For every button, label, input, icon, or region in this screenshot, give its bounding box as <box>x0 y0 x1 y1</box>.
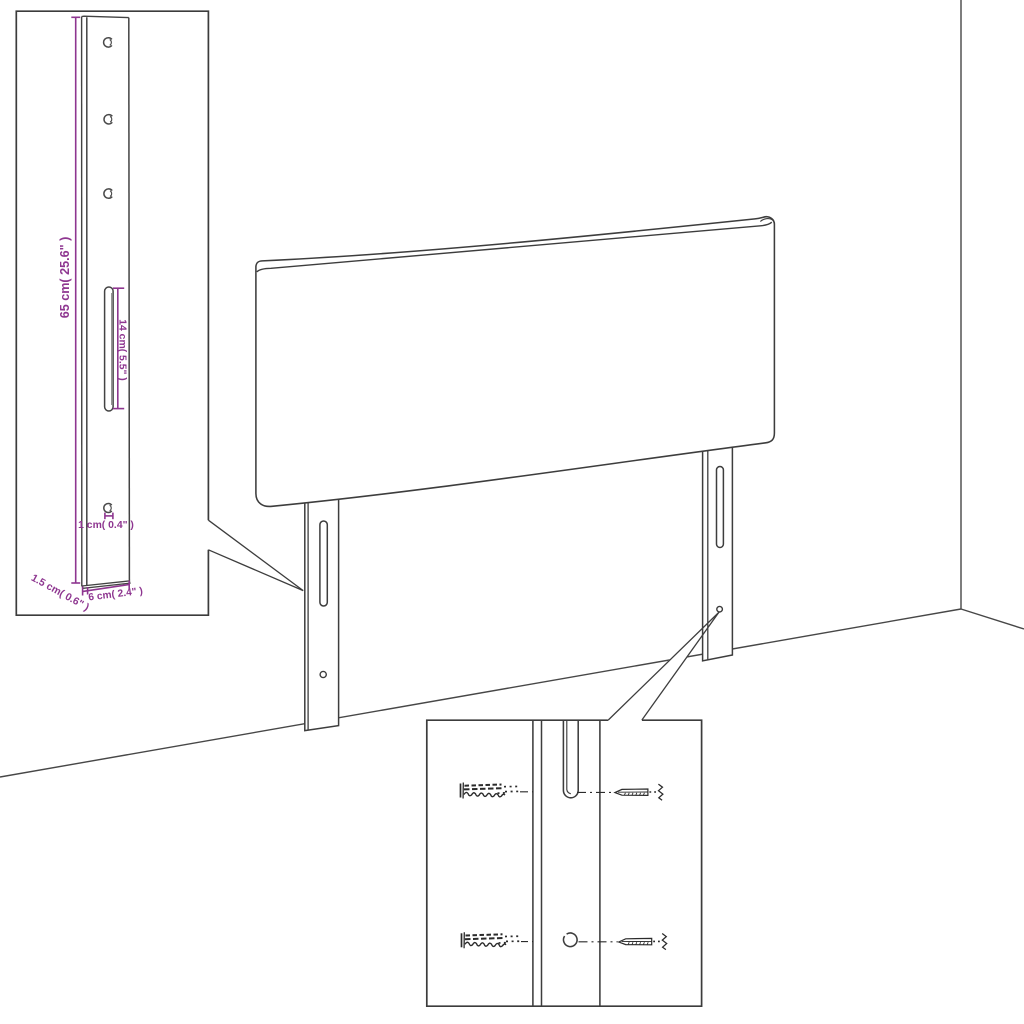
svg-text:14 cm( 5.5" ): 14 cm( 5.5" ) <box>117 319 128 381</box>
svg-text:65 cm( 25.6" ): 65 cm( 25.6" ) <box>58 237 72 319</box>
svg-text:1 cm( 0.4" ): 1 cm( 0.4" ) <box>78 520 134 531</box>
